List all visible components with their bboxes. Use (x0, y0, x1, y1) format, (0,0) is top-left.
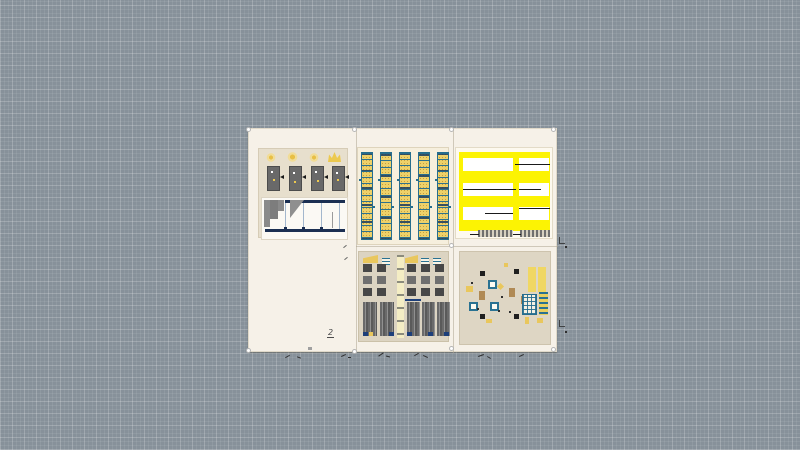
section-chart (261, 197, 348, 240)
brown-block (479, 291, 485, 300)
tick-mark (297, 356, 301, 358)
wedge-symbol (405, 255, 418, 263)
schedule-column (418, 152, 430, 240)
yellow-chip (504, 263, 508, 267)
navy-tick (320, 227, 323, 232)
yellow-highlight-block (459, 152, 550, 231)
framing-column (377, 264, 386, 298)
wall-bar (407, 302, 420, 336)
crown-symbol-icon (328, 152, 341, 162)
arrow-icon (302, 175, 306, 179)
panel-dot (273, 179, 275, 181)
panel-dot (271, 171, 273, 173)
wall-bar (380, 302, 394, 336)
framing-column (363, 264, 372, 298)
panel-figure (267, 166, 280, 191)
yellow-chip (497, 283, 504, 290)
plan-line (519, 208, 550, 209)
dimension-mark (559, 237, 565, 244)
arrow-icon (324, 175, 328, 179)
striped-block (539, 292, 548, 315)
schedule-column (399, 152, 411, 240)
navy-footing (407, 332, 412, 336)
navy-footing (428, 332, 433, 336)
hatched-strip (520, 230, 550, 237)
navy-tick (284, 227, 287, 232)
grip-handle[interactable] (449, 346, 454, 351)
yellow-chip (537, 318, 543, 323)
plan-line (463, 189, 516, 190)
symbol-icon (309, 153, 319, 162)
gray-dot (308, 347, 312, 350)
plan-line (515, 164, 550, 165)
tick-mark (285, 355, 290, 358)
sheet-highlighted-plans[interactable] (455, 147, 553, 239)
sheet-site-details[interactable] (459, 251, 551, 345)
dimension-mark (559, 320, 565, 327)
wall-bar (437, 302, 450, 336)
black-marker (480, 314, 485, 319)
plan-line (470, 234, 479, 235)
black-marker (514, 314, 519, 319)
symbol-icon (266, 153, 276, 162)
scatter-dot (565, 331, 567, 333)
yellow-bar (538, 267, 546, 292)
tick-mark (348, 357, 351, 358)
grip-handle[interactable] (449, 127, 454, 132)
symbol-icon (287, 152, 298, 162)
yellow-chip (369, 332, 373, 336)
scatter-dot (509, 311, 511, 313)
page-seam-horizontal (356, 246, 558, 247)
navy-footing (444, 332, 449, 336)
tick-mark (487, 356, 491, 359)
navy-footing (363, 332, 368, 336)
navy-tick (302, 227, 305, 232)
thin-column (332, 212, 333, 228)
plan-line (519, 189, 541, 190)
panel-dot (337, 179, 339, 181)
panel-figure (311, 166, 324, 191)
sheet-framing-details[interactable] (358, 251, 449, 342)
schedule-column (361, 152, 373, 240)
grid-line (321, 203, 322, 229)
teal-grid-block (522, 294, 537, 315)
wall-bar (363, 302, 377, 336)
scatter-dot (471, 282, 473, 284)
navy-dash (405, 299, 421, 301)
teal-fixture (488, 280, 497, 289)
grip-handle[interactable] (352, 349, 357, 354)
arrow-icon (345, 175, 349, 179)
navy-footing (389, 332, 394, 336)
schedule-column (437, 152, 449, 240)
page-seam-vertical-2 (453, 129, 454, 353)
wall-bar (422, 302, 435, 336)
center-strip (397, 255, 404, 338)
gray-mass (270, 200, 278, 219)
tick-mark (519, 354, 524, 357)
yellow-bar (528, 267, 536, 292)
grip-handle[interactable] (246, 127, 251, 132)
panel-dot (315, 171, 317, 173)
tick-mark (341, 354, 346, 357)
tick-mark (378, 352, 383, 356)
drawing-canvas[interactable]: 2 (0, 0, 800, 450)
scatter-dot (501, 296, 503, 298)
yellow-chip (466, 286, 473, 292)
sheet-schedules[interactable] (357, 147, 449, 245)
tick-mark (478, 354, 484, 357)
grip-handle[interactable] (551, 127, 556, 132)
yellow-chip (486, 319, 492, 323)
grip-handle[interactable] (449, 243, 454, 248)
grid-line (339, 203, 340, 229)
grip-handle[interactable] (246, 348, 251, 353)
brown-block (509, 288, 515, 297)
framing-column (435, 264, 444, 298)
schedule-column (380, 152, 392, 240)
panel-dot (294, 181, 296, 183)
panel-dot (317, 180, 319, 182)
sheet-elevation-details[interactable] (258, 148, 348, 238)
panel-figure (332, 166, 345, 191)
gray-mass (278, 200, 284, 211)
grid-line (303, 203, 304, 229)
tick-mark (423, 355, 428, 358)
navy-bottom-bar (265, 229, 345, 232)
gray-slope (290, 200, 304, 218)
yellow-chip (525, 317, 529, 324)
scatter-dot (498, 310, 500, 312)
scatter-dot (565, 246, 567, 248)
grip-handle[interactable] (352, 127, 357, 132)
white-band (463, 158, 513, 171)
panel-figure (289, 166, 302, 191)
black-marker (480, 271, 485, 276)
plan-line (513, 234, 521, 235)
black-marker (514, 269, 519, 274)
framing-column (421, 264, 430, 298)
scatter-dot (477, 308, 479, 310)
wedge-symbol (363, 255, 378, 263)
arrow-icon (280, 175, 284, 179)
sheet-number-annotation: 2 (327, 329, 334, 338)
panel-dot (293, 172, 295, 174)
tick-mark (414, 353, 419, 356)
framing-column (407, 264, 416, 298)
grid-line (285, 203, 286, 229)
panel-dot (336, 172, 338, 174)
hatched-strip (478, 230, 513, 237)
grip-handle[interactable] (551, 347, 556, 352)
tick-mark (386, 355, 390, 357)
plan-line (485, 213, 513, 214)
